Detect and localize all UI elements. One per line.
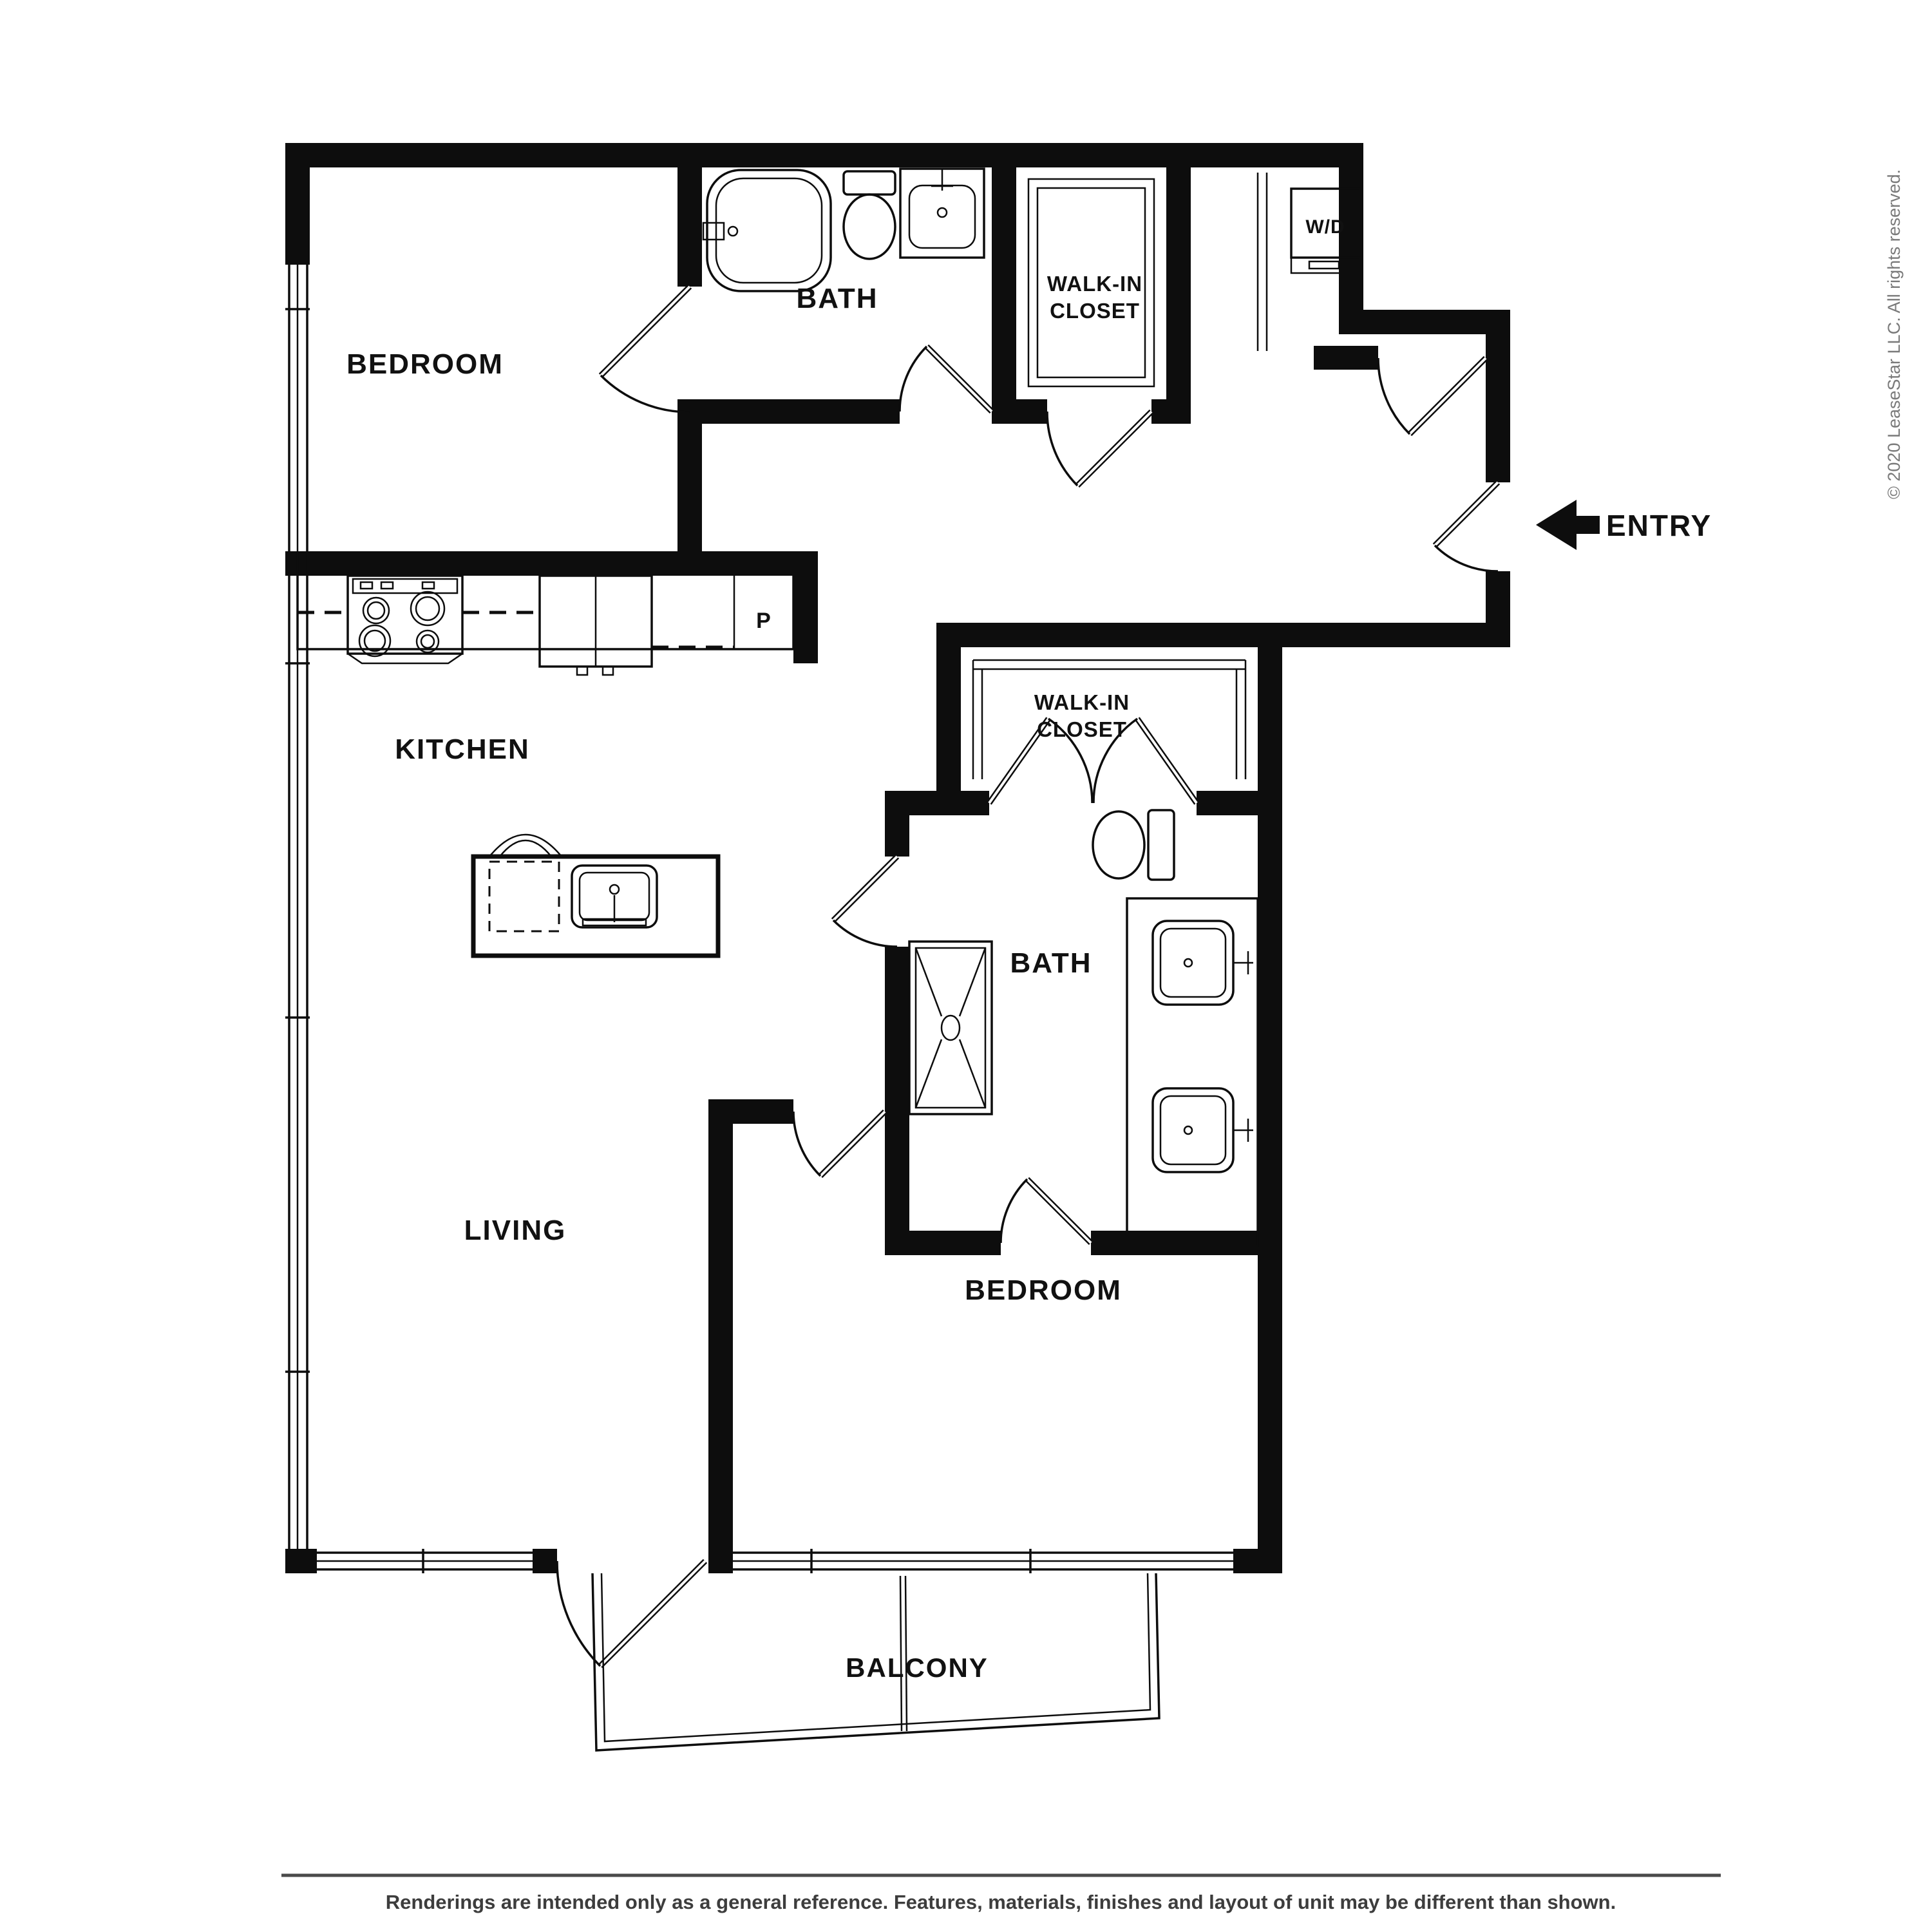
shower <box>909 942 992 1114</box>
door-bath2-hall <box>833 857 897 947</box>
wall-bath2-bottom-left <box>885 1231 1001 1255</box>
post-bedroom2-left-bottom <box>708 1549 733 1573</box>
bath2-fixtures <box>909 810 1258 1246</box>
wall-closet2-bottom-right <box>1197 791 1258 815</box>
wall-top <box>285 143 1363 167</box>
wall-bath2-left-upper <box>885 791 909 857</box>
room-label-closet1-line1: WALK-IN <box>1047 272 1142 296</box>
door-laundry <box>1378 358 1486 434</box>
wall-closet2-bottom-left <box>909 791 989 815</box>
dishwasher <box>489 862 559 931</box>
door-bedroom2 <box>793 1112 885 1176</box>
island-sink <box>572 866 657 927</box>
bathtub <box>703 170 831 291</box>
room-label-closet1-line2: CLOSET <box>1050 299 1140 323</box>
sink-vanity-bath1 <box>900 169 984 258</box>
room-label-bedroom-1: BEDROOM <box>346 348 504 380</box>
toilet-bath1 <box>844 171 895 259</box>
wall-bedroom1-right-upper <box>677 167 702 287</box>
wall-under-entry <box>936 623 1510 647</box>
wall-closet2-left <box>936 623 961 815</box>
door-bath2-bedroom <box>1001 1179 1091 1243</box>
label-pantry: P <box>756 609 772 633</box>
label-washer-dryer: W/D <box>1305 216 1345 238</box>
refrigerator <box>540 576 652 675</box>
floorplan-drawing: BEDROOM BATH WALK-IN CLOSET W/D ENTRY KI… <box>0 0 1932 1932</box>
room-label-bath-2: BATH <box>1010 947 1092 979</box>
wall-step-out <box>1339 310 1510 334</box>
room-label-bath-1: BATH <box>797 283 878 314</box>
door-balcony <box>557 1561 705 1666</box>
wall-bath1-closet1-divider <box>992 167 1016 424</box>
island-faucet-arc-inner <box>500 840 551 857</box>
wall-kitchen-right-stub <box>793 551 818 663</box>
room-label-closet2-line1: WALK-IN <box>1034 690 1130 714</box>
room-label-living: LIVING <box>464 1215 567 1246</box>
entry-arrow-icon <box>1536 500 1600 550</box>
door-bedroom1 <box>601 287 690 412</box>
wall-bedroom2-left <box>708 1099 733 1573</box>
post-bottom-right-corner <box>1233 1549 1282 1573</box>
wall-laundry-jamb <box>1314 346 1378 370</box>
post-bottom-left-corner <box>285 1549 317 1573</box>
kitchen-island <box>473 835 718 956</box>
windows <box>285 265 1233 1573</box>
vanity-bath2 <box>1127 898 1258 1246</box>
label-entry: ENTRY <box>1606 509 1712 542</box>
wall-closet1-laundry-divider <box>1166 167 1191 424</box>
wall-bath1-bottom <box>677 399 900 424</box>
door-bath1 <box>900 346 992 412</box>
wall-closet1-bottom-left <box>992 399 1047 424</box>
door-entry <box>1435 482 1498 571</box>
wall-bath2-bottom-right <box>1091 1231 1282 1255</box>
copyright-notice: © 2020 LeaseStar LLC. All rights reserve… <box>1884 169 1904 499</box>
room-label-kitchen: KITCHEN <box>395 734 530 765</box>
wall-entry-above <box>1486 310 1510 482</box>
kitchen-area <box>298 576 793 675</box>
wall-bath2-left-lower <box>885 947 909 1255</box>
island-faucet-arc-outer <box>489 835 562 857</box>
room-label-bedroom-2: BEDROOM <box>965 1274 1122 1306</box>
door-closet1 <box>1047 412 1151 486</box>
wall-left-upper <box>285 143 310 265</box>
toilet-bath2 <box>1093 810 1174 880</box>
bath1-fixtures <box>703 169 984 291</box>
wall-kitchen-top <box>285 551 818 576</box>
footer-disclaimer: Renderings are intended only as a genera… <box>386 1891 1616 1913</box>
floorplan-page: BEDROOM BATH WALK-IN CLOSET W/D ENTRY KI… <box>0 0 1932 1932</box>
post-balcony-door-left <box>533 1549 557 1573</box>
wall-bedroom1-right-lower <box>677 424 702 551</box>
room-label-balcony: BALCONY <box>846 1653 989 1683</box>
room-label-closet2-line2: CLOSET <box>1037 717 1127 741</box>
wall-right-lower <box>1258 647 1282 1573</box>
